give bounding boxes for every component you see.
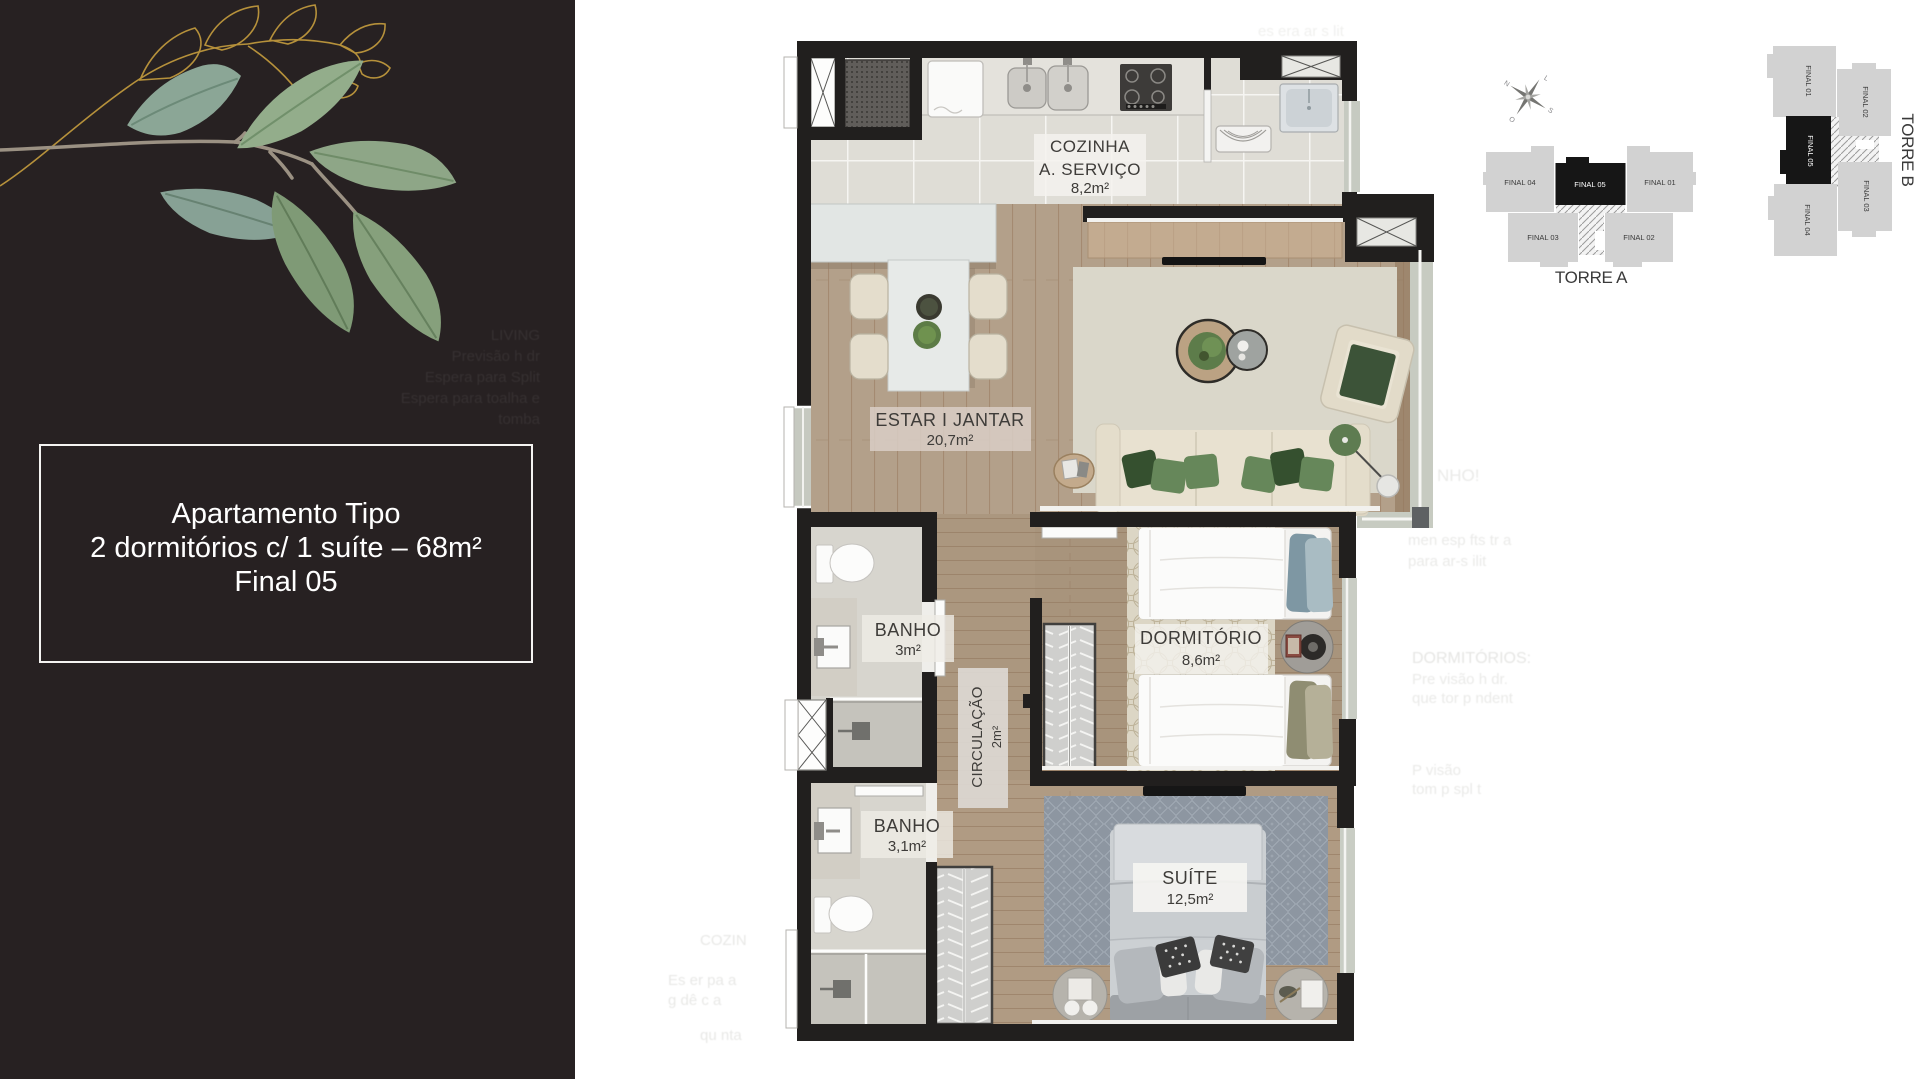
svg-text:3m²: 3m² bbox=[895, 642, 921, 659]
svg-text:FINAL 04: FINAL 04 bbox=[1504, 178, 1535, 187]
svg-text:S: S bbox=[1546, 107, 1554, 116]
svg-text:COZINHA: COZINHA bbox=[1050, 137, 1130, 156]
svg-text:g dê c a: g dê c a bbox=[668, 992, 722, 1009]
svg-text:N: N bbox=[1502, 80, 1510, 89]
svg-text:12,5m²: 12,5m² bbox=[1167, 891, 1214, 908]
svg-text:qu nta: qu nta bbox=[700, 1027, 742, 1044]
svg-text:2m²: 2m² bbox=[989, 725, 1004, 748]
svg-text:FINAL 04: FINAL 04 bbox=[1803, 204, 1812, 235]
svg-text:es era ar s lit: es era ar s lit bbox=[1258, 23, 1345, 40]
svg-text:Pre visão h dr.: Pre visão h dr. bbox=[1412, 671, 1508, 688]
svg-text:FINAL 05: FINAL 05 bbox=[1806, 135, 1815, 166]
svg-text:men esp fts tr a: men esp fts tr a bbox=[1408, 532, 1512, 549]
svg-text:FINAL 02: FINAL 02 bbox=[1623, 233, 1654, 242]
svg-text:SUÍTE: SUÍTE bbox=[1162, 868, 1218, 888]
svg-text:DORMITÓRIO: DORMITÓRIO bbox=[1140, 627, 1262, 648]
svg-text:FINAL 02: FINAL 02 bbox=[1861, 86, 1870, 117]
svg-text:ESTAR I JANTAR: ESTAR I JANTAR bbox=[875, 410, 1024, 430]
svg-text:COZIN: COZIN bbox=[700, 932, 747, 949]
svg-text:TORRE B: TORRE B bbox=[1898, 113, 1917, 186]
svg-text:para ar-s ilit: para ar-s ilit bbox=[1408, 553, 1487, 570]
svg-text:FINAL 01: FINAL 01 bbox=[1804, 65, 1813, 96]
svg-text:8,6m²: 8,6m² bbox=[1182, 652, 1220, 669]
svg-text:DORMITÓRIOS:: DORMITÓRIOS: bbox=[1412, 648, 1531, 667]
svg-text:20,7m²: 20,7m² bbox=[927, 432, 974, 449]
svg-text:FINAL 03: FINAL 03 bbox=[1862, 180, 1871, 211]
svg-text:O: O bbox=[1507, 116, 1516, 125]
svg-text:que tor p ndent: que tor p ndent bbox=[1412, 690, 1514, 707]
svg-text:tom p spl t: tom p spl t bbox=[1412, 781, 1482, 798]
svg-text:Es er pa a: Es er pa a bbox=[668, 972, 737, 989]
svg-text:3,1m²: 3,1m² bbox=[888, 838, 926, 855]
svg-text:BANHO: BANHO bbox=[874, 816, 941, 836]
svg-text:L: L bbox=[1542, 75, 1549, 83]
svg-text:FINAL 01: FINAL 01 bbox=[1644, 178, 1675, 187]
svg-text:8,2m²: 8,2m² bbox=[1071, 180, 1109, 197]
svg-text:CIRCULAÇÃO: CIRCULAÇÃO bbox=[969, 686, 986, 787]
svg-text:P visão: P visão bbox=[1412, 762, 1461, 779]
svg-text:FINAL 03: FINAL 03 bbox=[1527, 233, 1558, 242]
svg-text:NHO!: NHO! bbox=[1437, 466, 1480, 485]
svg-text:FINAL 05: FINAL 05 bbox=[1574, 180, 1605, 189]
svg-text:BANHO: BANHO bbox=[875, 620, 942, 640]
svg-text:TORRE A: TORRE A bbox=[1555, 268, 1628, 287]
svg-text:A. SERVIÇO: A. SERVIÇO bbox=[1039, 160, 1141, 179]
